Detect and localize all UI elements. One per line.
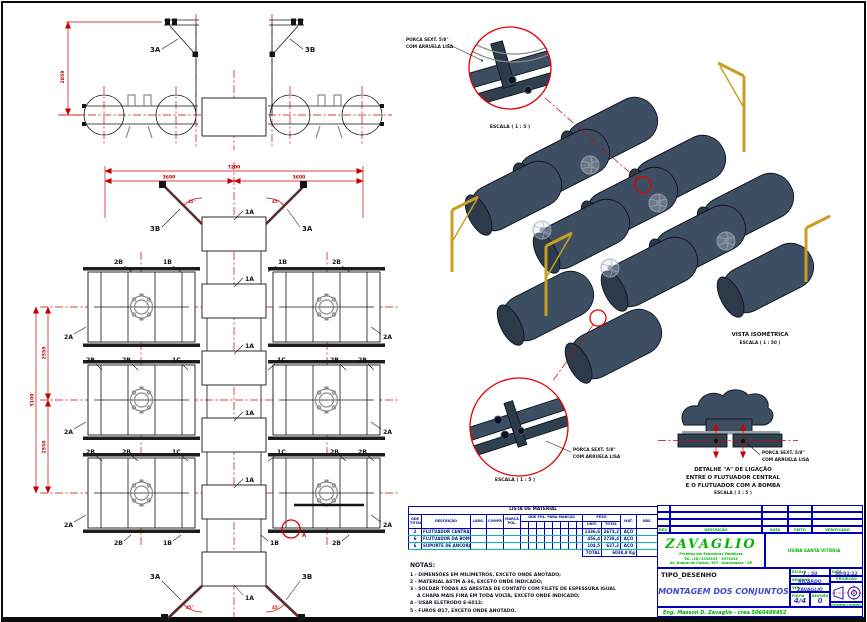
drawing-title-cell: TIPO_DESENHO MONTAGEM DOS CONJUNTOS <box>657 568 790 607</box>
callout-porca-a-2: COM ARRUELA LISA <box>762 457 810 463</box>
desenho-field: DESENHORICARDO <box>790 576 830 584</box>
svg-text:45°: 45° <box>272 605 280 610</box>
notes-block: NOTAS: 1 - DIMENSÕES EM MILÍMETROS, EXCE… <box>410 562 660 615</box>
col-total: TOTAL <box>602 522 621 529</box>
svg-text:1A: 1A <box>245 477 254 484</box>
col-peso: PESO <box>583 515 621 522</box>
detail-top-scale: ESCALA ( 1 : 5 ) <box>490 124 530 130</box>
part-label-3a: 3A <box>302 225 313 233</box>
part-label-3b: 3B <box>150 225 160 233</box>
drawing-title: MONTAGEM DOS CONJUNTOS <box>658 587 789 596</box>
iso-title: VISTA ISOMÉTRICA <box>732 330 790 338</box>
callout-porca-bottom-2: COM ARRUELA LISA <box>573 454 621 460</box>
escala-field: ESCALA1 : 50 <box>790 568 830 576</box>
svg-text:2A: 2A <box>64 522 73 529</box>
drawing-sheet: 3A 3B 2859 7200 3600 3600 2550 2550 5100… <box>0 0 867 622</box>
front-view: 3A 3B 2859 <box>58 14 392 150</box>
svg-text:1B: 1B <box>278 259 287 266</box>
part-label-3b: 3B <box>305 46 315 54</box>
revisao-field: REVISÃO0 <box>810 592 830 607</box>
svg-text:1A: 1A <box>245 410 254 417</box>
iso-scale: ESCALA ( 1 : 50 ) <box>740 340 781 346</box>
dim-total-height: 5100 <box>30 394 36 407</box>
note-line: 4 - USAR ELETRODO E-6013; <box>410 600 660 607</box>
note-line: 3 - SOLDAR TODAS AS ARESTAS DE CONTATO C… <box>410 586 660 593</box>
svg-text:1B: 1B <box>163 259 172 266</box>
engineer-cell: Eng. Masson D. Zavaglio - crea 506048845… <box>657 607 863 617</box>
detail-a-scale: ESCALA ( 1 : 5 ) <box>714 490 752 496</box>
material-total-value: 6038,8 Kg <box>602 550 637 557</box>
company-cell: ZAVAGLIO Projetos em Estruturas Metálica… <box>657 533 765 568</box>
svg-text:45°: 45° <box>272 199 280 204</box>
svg-text:2B: 2B <box>114 540 123 547</box>
svg-text:2B: 2B <box>332 259 341 266</box>
dim-total-width: 7200 <box>228 165 241 171</box>
svg-text:2A: 2A <box>64 334 73 341</box>
engineer-signature: Eng. Masson D. Zavaglio - crea 506048845… <box>658 608 862 617</box>
note-line: 1 - DIMENSÕES EM MILÍMETROS, EXCETO ONDE… <box>410 572 660 579</box>
rev-col-header: REV. <box>657 526 670 533</box>
svg-text:2B: 2B <box>332 540 341 547</box>
detail-circle-top: PORCA SEXT. 5/8" COM ARRUELA LISA ESCALA… <box>406 18 575 130</box>
svg-text:1A: 1A <box>245 343 254 350</box>
folha-field: FOLHA4/4 <box>790 592 810 607</box>
col-mat: MAT. <box>621 515 637 529</box>
projection-symbol-cell <box>830 582 863 602</box>
svg-text:2B: 2B <box>114 259 123 266</box>
svg-text:1C: 1C <box>172 449 181 456</box>
detail-a-title-1: DETALHE "A" DE LIGAÇÃO <box>694 466 772 473</box>
revisao-value: 0 <box>811 597 829 605</box>
part-label-3a: 3A <box>150 46 161 54</box>
material-total-row: TOTAL 6038,8 Kg <box>409 550 658 557</box>
data-col-header: DATA <box>762 526 788 533</box>
svg-text:2B: 2B <box>122 357 131 364</box>
col-unit: UNIT. <box>583 522 602 529</box>
svg-text:45°: 45° <box>186 605 194 610</box>
dim-half-width-right: 3600 <box>293 175 306 181</box>
material-row: 6SUPORTE DE ANCORAGEM 104,5627,2 AÇO <box>409 543 658 550</box>
svg-text:2B: 2B <box>122 449 131 456</box>
col-desc: DESCRIÇÃO <box>422 515 471 529</box>
col-qty: QDE TOTAL <box>409 515 422 529</box>
detail-bottom-scale: ESCALA ( 1 : 5 ) <box>495 477 535 483</box>
material-list-table: LISTA DE MATERIAL QDE TOTAL DESCRIÇÃO LA… <box>408 506 658 557</box>
svg-text:2A: 2A <box>64 429 73 436</box>
central-float-front <box>202 98 266 136</box>
note-line: A CHAPA MAIS FINA EM TODA VOLTA, EXCETO … <box>410 593 660 600</box>
svg-text:2B: 2B <box>358 449 367 456</box>
verificado-field: VER.ZAVAGLIO <box>790 584 830 592</box>
part-label-3a: 3A <box>150 573 161 581</box>
note-line: 2 - MATERIAL ASTM A-36, EXCETO ONDE INDI… <box>410 579 660 586</box>
note-line: 5 - FUROS Ø17, EXCETO ONDE ANOTADO. <box>410 608 660 615</box>
svg-text:1A: 1A <box>245 595 254 602</box>
svg-text:2A: 2A <box>383 334 392 341</box>
svg-text:1A: 1A <box>245 209 254 216</box>
svg-text:1C: 1C <box>172 357 181 364</box>
part-label-3b: 3B <box>302 573 312 581</box>
tipo-desenho-label: TIPO_DESENHO <box>661 571 789 579</box>
svg-text:2B: 2B <box>358 357 367 364</box>
callout-porca-a-1: PORCA SEXT. 5/8" <box>762 450 805 456</box>
client-name: USINA SANTA VITÓRIA <box>766 548 862 553</box>
detail-a-marker-label: A <box>302 533 307 539</box>
dim-front-height: 2859 <box>60 71 66 84</box>
part-labels-1a: 1A 1A 1A 1A 1A 1A <box>234 209 254 602</box>
col-marca: MARCA POL. <box>504 515 521 529</box>
central-float-plan <box>202 217 266 251</box>
svg-text:2B: 2B <box>330 357 339 364</box>
svg-text:1C: 1C <box>277 357 286 364</box>
davit-mast-left <box>164 19 199 116</box>
company-line3: Av. Duque de Caxias, 307 - Araraquara - … <box>658 561 764 566</box>
detail-circle-bottom: PORCA SEXT. 5/8" COM ARRUELA LISA ESCALA… <box>450 376 621 483</box>
svg-text:2B: 2B <box>86 449 95 456</box>
svg-text:1B: 1B <box>163 540 172 547</box>
svg-text:2B: 2B <box>330 449 339 456</box>
svg-text:2B: 2B <box>86 357 95 364</box>
dim-half-width-left: 3600 <box>163 175 176 181</box>
svg-text:1C: 1C <box>277 449 286 456</box>
company-logo: ZAVAGLIO <box>658 537 764 552</box>
desc-col-header: DESCRIÇÃO <box>670 526 762 533</box>
callout-porca-bottom-1: PORCA SEXT. 5/8" <box>573 447 616 453</box>
isometric-view: VISTA ISOMÉTRICA ESCALA ( 1 : 50 ) <box>452 63 830 388</box>
detail-a-title-2: ENTRE O FLUTUADOR CENTRAL <box>686 475 781 481</box>
notes-title: NOTAS: <box>410 562 660 569</box>
material-table-title: LISTA DE MATERIAL <box>409 507 658 515</box>
col-larg: LARG. <box>471 515 487 529</box>
detail-a-section: PORCA SEXT. 5/8" COM ARRUELA LISA DETALH… <box>658 390 810 496</box>
svg-text:1A: 1A <box>245 276 254 283</box>
feito-col-header: FEITO <box>788 526 812 533</box>
svg-text:45°: 45° <box>188 199 196 204</box>
detail-marker-bottom <box>590 310 606 326</box>
col-compr: COMPR. <box>487 515 504 529</box>
dim-half-height-bottom: 2550 <box>42 441 48 454</box>
col-qde-pol: QDE POL. PARA MARCAS <box>521 515 583 522</box>
verificado-col-header: VERIFICADO <box>812 526 863 533</box>
material-row: 6FLUTUADOR DA BOMBA 456,42738,4 AÇO <box>409 536 658 543</box>
svg-text:2A: 2A <box>383 429 392 436</box>
dim-half-height-top: 2550 <box>42 347 48 360</box>
svg-text:2A: 2A <box>383 522 392 529</box>
callout-porca-top-2: COM ARRUELA LISA <box>406 44 454 50</box>
detail-a-title-3: E O FLUTUADOR COM A BOMBA <box>686 483 781 489</box>
data-field: DATA30/01/12 <box>830 568 863 576</box>
davit-mast-right <box>269 19 304 116</box>
folha-value: 4/4 <box>791 597 809 605</box>
col-obs: OBS. <box>637 515 658 529</box>
client-cell: USINA SANTA VITÓRIA <box>765 533 863 568</box>
first-angle-projection-icon <box>831 583 863 602</box>
plan-view: 7200 3600 3600 2550 2550 5100 1A 1A 1A 1… <box>30 162 399 621</box>
svg-text:1B: 1B <box>270 540 279 547</box>
callout-porca-top-1: PORCA SEXT. 5/8" <box>406 37 449 43</box>
material-total-label: TOTAL <box>583 550 602 557</box>
material-row: 2FLUTUADOR CENTRAL 1336,62673,2 AÇO <box>409 529 658 536</box>
title-block: REV. DESCRIÇÃO DATA FEITO VERIFICADO ZAV… <box>657 505 863 617</box>
